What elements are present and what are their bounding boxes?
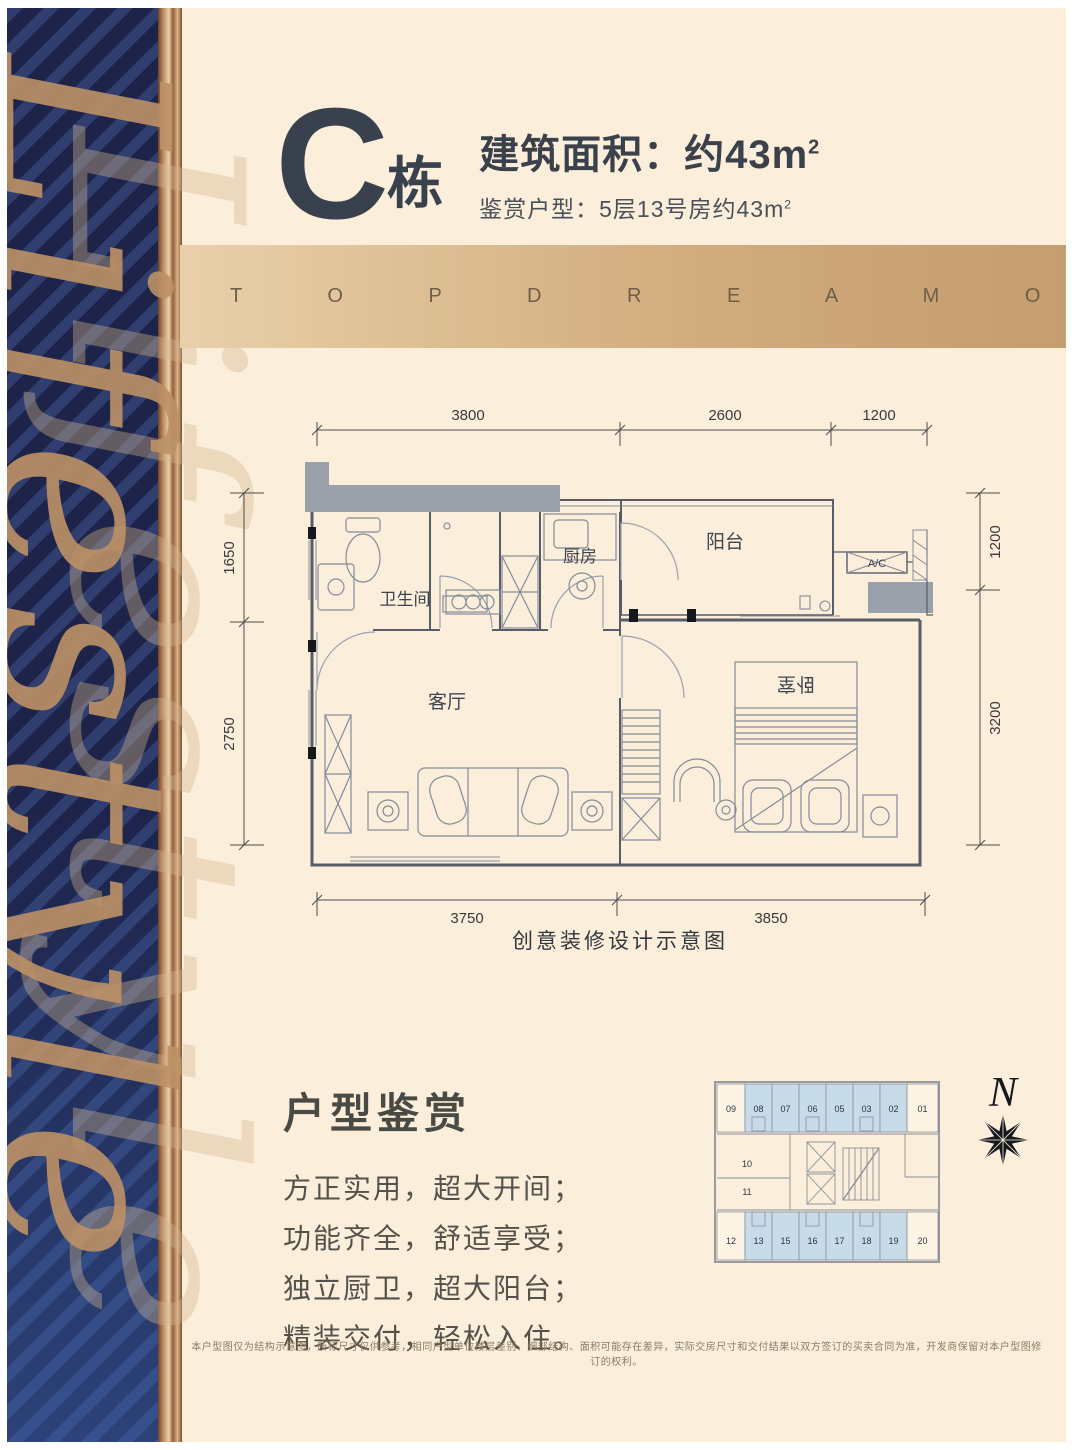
appreciation-heading: 户型鉴赏	[283, 1080, 663, 1141]
entry-door	[317, 632, 375, 690]
sofa-icon	[418, 768, 568, 836]
subtitle-label: 鉴赏户型：5层13号房约43m	[479, 196, 784, 222]
dim-top-2: 2600	[708, 407, 741, 424]
subtitle: 鉴赏户型：5层13号房约43m2	[479, 190, 820, 224]
ac-platform: A/C	[847, 530, 927, 580]
kitchen-fixtures	[502, 514, 616, 628]
dim-left-1: 1650	[221, 541, 238, 574]
unit-number: 17	[834, 1236, 844, 1246]
dim-bottom-2: 3850	[754, 910, 787, 927]
unit-number: 20	[917, 1236, 927, 1246]
area-label: 建筑面积：约43m	[479, 133, 808, 177]
unit-number: 01	[917, 1104, 927, 1114]
keyplan-core	[717, 1134, 938, 1210]
appreciation-line: 功能齐全，舒适享受；	[283, 1215, 663, 1263]
bedroom-furniture	[622, 662, 897, 840]
balcony-label: 阳台	[706, 531, 744, 553]
appreciation-line: 方正实用，超大开间；	[283, 1165, 663, 1213]
floor-plan: A/C 卫生间 厨房 阳台 客厅 卧室 3800 2600	[200, 390, 1010, 960]
room-labels: 卫生间 厨房 阳台 客厅 卧室	[380, 531, 816, 713]
unit-number: 03	[861, 1104, 871, 1114]
unit-number: 02	[888, 1104, 898, 1114]
plan-caption: 创意装修设计示意图	[512, 930, 728, 953]
stool	[716, 800, 736, 820]
balcony-door	[621, 523, 678, 580]
appreciation-section: 户型鉴赏 方正实用，超大开间； 功能齐全，舒适享受； 独立厨卫，超大阳台； 精装…	[283, 1080, 663, 1363]
unit-number: 11	[742, 1187, 751, 1197]
area-title: 建筑面积：约43m2	[479, 122, 820, 180]
unit-number: 08	[753, 1104, 763, 1114]
unit-number: 13	[753, 1236, 763, 1246]
top-dream-banner: T O P D R E A M O F C I T Y	[180, 245, 1066, 348]
unit-number: 18	[861, 1236, 871, 1246]
compass-facets	[977, 1114, 1029, 1166]
nightstand	[863, 795, 897, 837]
header-text: 建筑面积：约43m2 鉴赏户型：5层13号房约43m2	[479, 122, 820, 224]
building-letter: C	[275, 100, 385, 230]
kitchen-label: 厨房	[563, 547, 597, 566]
unit-number: 10	[742, 1159, 752, 1169]
bedroom-label: 卧室	[777, 673, 815, 695]
ac-label: A/C	[868, 558, 886, 570]
unit-number: 19	[888, 1236, 898, 1246]
dim-bottom-1: 3750	[450, 910, 483, 927]
unit-number: 12	[726, 1236, 736, 1246]
unit-number: 09	[726, 1104, 736, 1114]
area-superscript: 2	[808, 136, 820, 158]
washer-box	[446, 590, 500, 614]
living-label: 客厅	[428, 691, 466, 713]
dim-right-1: 1200	[987, 525, 1004, 558]
dim-top-1: 3800	[451, 407, 484, 424]
dim-left-2: 2750	[221, 717, 238, 750]
side-table	[572, 792, 612, 830]
keyplan-bottom-row	[717, 1212, 938, 1260]
unit-number: 05	[834, 1104, 844, 1114]
disclaimer-text: 本户型图仅为结构示意图，所标尺寸仅供参考，相同户型单位楼层差别、细部结构、面积可…	[187, 1338, 1046, 1368]
kitchen-sink-icon	[554, 520, 588, 548]
banner-text: T O P D R E A M O F C I T Y	[180, 285, 1066, 308]
unit-number: 15	[780, 1236, 790, 1246]
appreciation-line: 独立厨卫，超大阳台；	[283, 1265, 663, 1313]
side-decor-band	[7, 8, 158, 1442]
side-table	[368, 792, 408, 830]
unit-number: 16	[807, 1236, 817, 1246]
header: C 栋 建筑面积：约43m2 鉴赏户型：5层13号房约43m2	[275, 100, 820, 230]
compass: N	[963, 1070, 1043, 1180]
keyplan-top-row	[717, 1084, 938, 1132]
dim-right-2: 3200	[987, 701, 1004, 734]
bathroom-label: 卫生间	[380, 590, 431, 609]
dim-top-3: 1200	[862, 407, 895, 424]
unit-number: 06	[807, 1104, 817, 1114]
key-plan: 09 08 07 06 05 03 02 01 10 11 12 13 15 1…	[695, 1072, 945, 1272]
toilet-icon	[346, 534, 380, 582]
living-furniture	[325, 715, 612, 836]
poster-sheet: Lifestyle Lifestyle C 栋 建筑面积：约43m2 鉴赏户型：…	[7, 8, 1066, 1442]
bedroom-door	[622, 636, 684, 698]
building-suffix: 栋	[387, 139, 443, 220]
balcony-items	[800, 596, 830, 611]
poster-canvas: Lifestyle Lifestyle C 栋 建筑面积：约43m2 鉴赏户型：…	[0, 0, 1080, 1450]
gold-stripe-bar	[158, 8, 182, 1442]
north-label: N	[988, 1070, 1019, 1116]
unit-number: 07	[780, 1104, 790, 1114]
subtitle-superscript: 2	[784, 197, 792, 211]
